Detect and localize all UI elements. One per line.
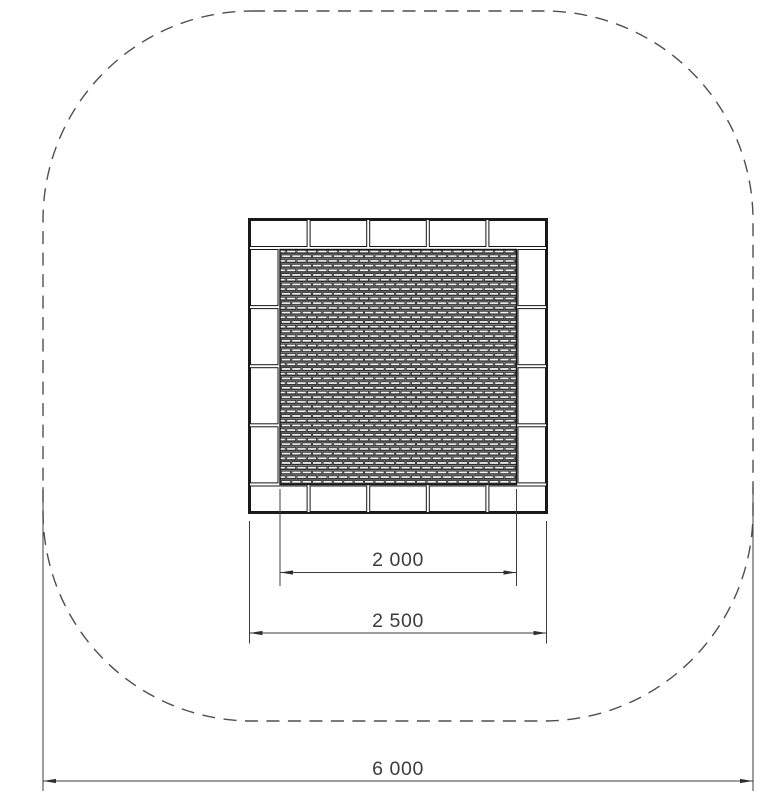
jump-mat xyxy=(280,250,517,485)
dimension-safety-zone: 6 000 xyxy=(43,487,753,791)
frame-pad xyxy=(310,221,367,247)
frame-pad xyxy=(251,309,279,365)
frame-pad xyxy=(370,486,427,512)
dim-arrow xyxy=(740,779,753,783)
frame-pad xyxy=(251,427,279,483)
dim-arrow xyxy=(504,570,517,574)
frame-pad xyxy=(518,309,546,365)
dimension-label-frame: 2 500 xyxy=(372,610,424,632)
dim-arrow xyxy=(534,631,547,635)
frame-pad xyxy=(370,221,427,247)
frame-pad xyxy=(429,221,486,247)
frame-pad xyxy=(251,250,279,306)
frame-pad xyxy=(518,427,546,483)
frame-pad xyxy=(251,221,308,247)
frame-pad xyxy=(251,368,279,424)
frame-pad xyxy=(518,250,546,306)
frame-pad xyxy=(489,221,546,247)
dim-arrow xyxy=(43,779,56,783)
dim-arrow xyxy=(280,570,293,574)
dimension-frame-width: 2 500 xyxy=(250,521,547,644)
trampoline-plan-drawing: 2 000 2 500 6 000 xyxy=(0,0,784,800)
frame-pad xyxy=(489,486,546,512)
frame-pad xyxy=(251,486,308,512)
frame-pad xyxy=(429,486,486,512)
drawing-svg: 2 000 2 500 6 000 xyxy=(0,0,784,800)
dim-arrow xyxy=(250,631,263,635)
trampoline xyxy=(249,219,547,513)
dimension-label-mat: 2 000 xyxy=(372,549,424,571)
frame-pad xyxy=(518,368,546,424)
frame-pad xyxy=(310,486,367,512)
dimension-label-safety-zone: 6 000 xyxy=(372,758,424,780)
